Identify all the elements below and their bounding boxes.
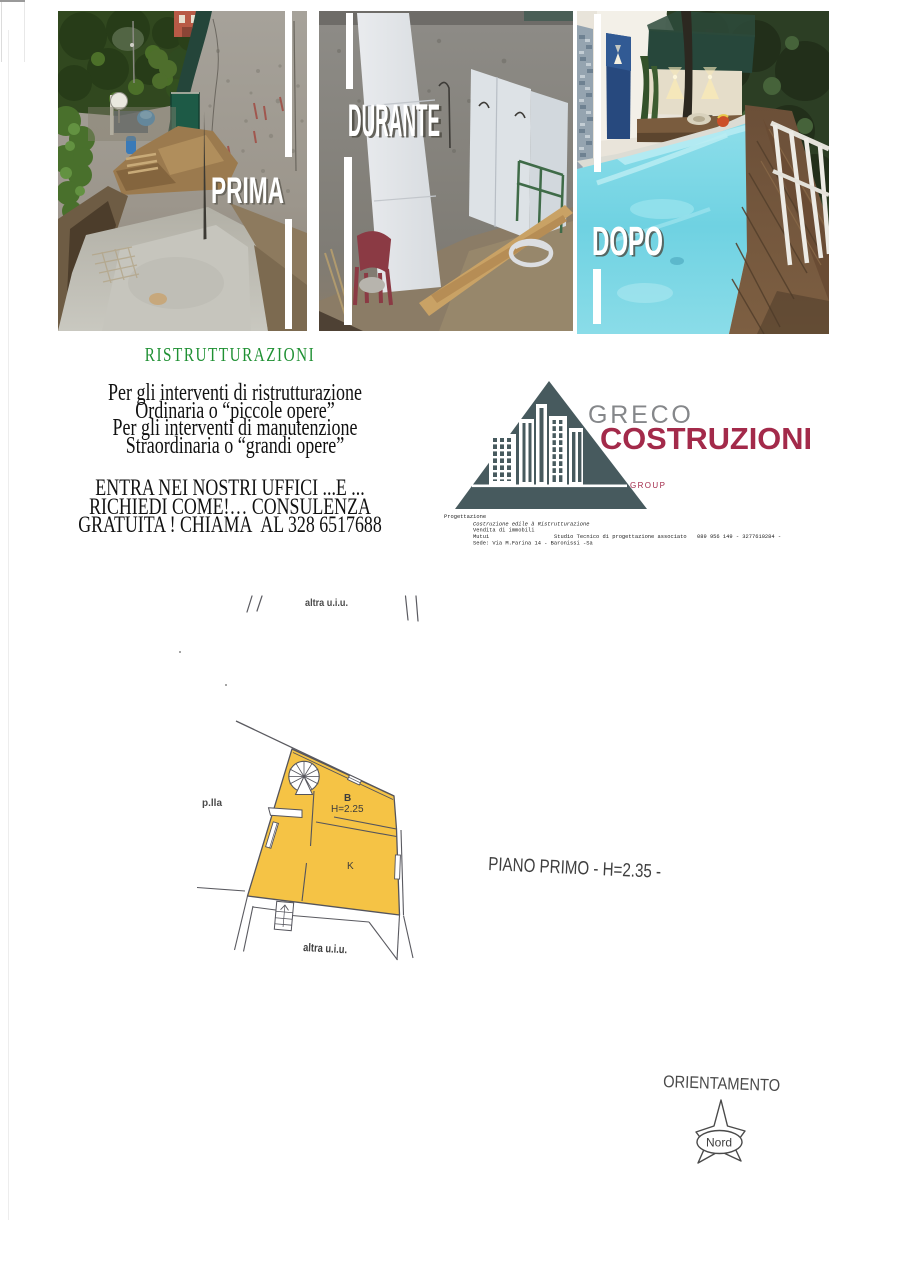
svg-text:H=2.25: H=2.25 (331, 804, 364, 815)
svg-text:COSTRUZIONI: COSTRUZIONI (600, 422, 812, 456)
svg-text:DURANTE: DURANTE (348, 95, 440, 146)
svg-text:PIANO PRIMO - H=2.35 -: PIANO PRIMO - H=2.35 - (488, 854, 662, 883)
svg-text:Progettazione: Progettazione (444, 514, 486, 520)
svg-text:Mutui: Mutui (473, 534, 489, 540)
svg-text:K: K (347, 861, 354, 872)
svg-text:Vendita di immobili: Vendita di immobili (473, 528, 534, 534)
svg-text:089 956 149 - 3277610284 -: 089 956 149 - 3277610284 - (697, 534, 781, 540)
svg-text:p.lla: p.lla (202, 798, 222, 809)
svg-text:B: B (344, 793, 351, 804)
svg-text:ORIENTAMENTO: ORIENTAMENTO (663, 1072, 781, 1095)
svg-text:PRIMA: PRIMA (211, 170, 284, 211)
svg-text:Studio Tecnico di progettazion: Studio Tecnico di progettazione associat… (554, 534, 687, 540)
svg-text:Nord: Nord (706, 1136, 732, 1150)
svg-text:Sede: Via M.Farina 14 - Baroni: Sede: Via M.Farina 14 - Baronissi -Sa (473, 541, 593, 547)
svg-text:DOPO: DOPO (592, 218, 663, 264)
svg-text:altra u.i.u.: altra u.i.u. (305, 597, 348, 609)
svg-text:GROUP: GROUP (630, 481, 666, 490)
svg-text:altra u.i.u.: altra u.i.u. (303, 942, 348, 956)
